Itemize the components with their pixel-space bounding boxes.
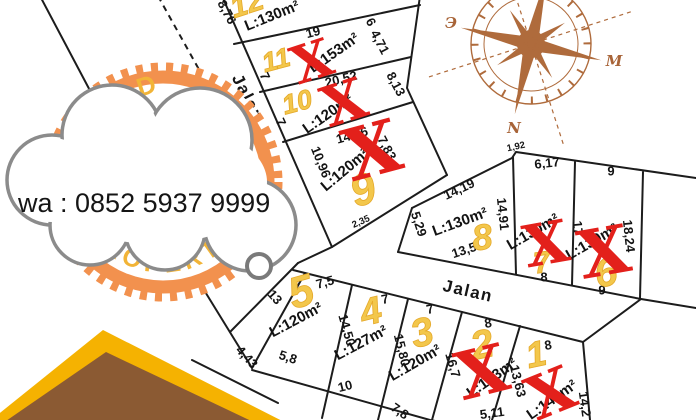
dim-label: 8,13 [383,69,408,98]
house-roof-graphic [0,330,300,420]
compass-letter-bottom: N [506,119,522,137]
boundary-line [640,172,643,298]
compass-rose-icon: Э M N [421,0,642,154]
phone-number-text: wa : 0852 5937 9999 [17,188,270,218]
plot-number: 3 [406,309,438,357]
compass-letter-left: Э [445,14,457,32]
plot-number: 8 [469,215,495,258]
boundary-line [583,299,641,342]
dim-label: 9 [607,164,614,179]
dim-label: 4,43 [233,343,261,372]
circle-marker [247,254,271,278]
dim-label: 14,19 [441,175,477,202]
compass-letter-right: M [605,52,623,70]
site-plan-canvas: Jalan Jalan 8,76 6 4,71 19 7 20,52 7 8,1… [0,0,696,420]
dim-label: 5,29 [408,210,430,239]
sold-x-mark: X [518,207,574,282]
boundary-line [407,0,447,175]
sold-x-mark: X [448,328,517,416]
dim-label: 5,8 [277,347,299,367]
dim-label: 13 [265,287,286,308]
dim-label: 10 [336,377,354,395]
site-plan-flyer: Jalan Jalan 8,76 6 4,71 19 7 20,52 7 8,1… [0,0,696,420]
street-label: Jalan [441,276,495,306]
dim-label: 7,8 [388,400,411,420]
sold-x-mark: X [334,102,410,199]
dim-label: 4,71 [367,27,392,56]
dim-label: 14,91 [494,197,512,231]
boundary-line [513,157,516,274]
plot-number: 5 [282,265,320,319]
dim-label: 6,17 [534,154,561,172]
boundary-line [40,0,95,100]
